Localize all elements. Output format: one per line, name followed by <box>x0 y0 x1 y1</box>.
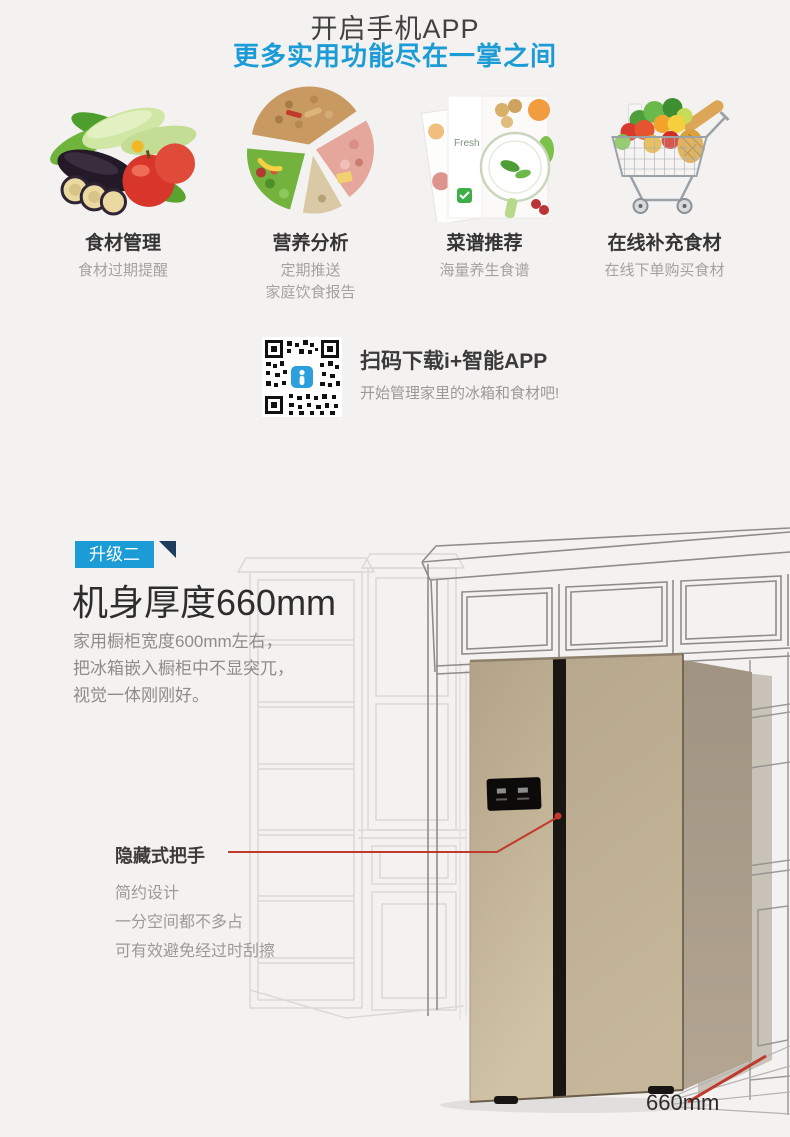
section-desc-line: 家用橱柜宽度600mm左右， <box>73 628 294 655</box>
section-title: 机身厚度660mm <box>72 574 336 626</box>
handle-callout-title: 隐藏式把手 <box>115 842 275 868</box>
qr-code-image <box>262 337 342 417</box>
fridge-right-door <box>566 654 683 1096</box>
shopping-cart-icon <box>582 82 747 222</box>
fridge-handle-strip <box>553 658 566 1099</box>
feature-desc-line: 食材过期提醒 <box>38 260 208 282</box>
nutrition-image <box>228 82 393 222</box>
fridge-foot <box>494 1096 518 1104</box>
handle-desc-line: 可有效避免经过时刮擦 <box>115 937 275 966</box>
cart-image <box>572 82 757 222</box>
pointer-dot <box>555 813 562 820</box>
badge-corner-icon <box>156 541 176 561</box>
fridge-left-door <box>470 658 553 1102</box>
feature-title: 菜谱推荐 <box>402 228 567 255</box>
feature-title: 营养分析 <box>228 228 393 255</box>
fridge-control-panel <box>486 777 541 811</box>
feature-desc-line: 定期推送 <box>228 260 393 282</box>
handle-desc-line: 简约设计 <box>115 879 275 908</box>
fridge-illustration <box>440 654 752 1113</box>
qr-code-icon <box>262 337 342 417</box>
ingredients-image <box>38 82 208 222</box>
qr-subtitle: 开始管理家里的冰箱和食材吧! <box>360 382 559 403</box>
section-desc-line: 把冰箱嵌入橱柜中不显突兀， <box>73 655 294 682</box>
handle-callout: 隐藏式把手 简约设计 一分空间都不多占 可有效避免经过时刮擦 <box>115 842 275 966</box>
feature-desc-line: 家庭饮食报告 <box>228 282 393 304</box>
feature-desc-line: 在线下单购买食材 <box>572 260 757 282</box>
product-detail-page: 开启手机APP 更多实用功能尽在一掌之间 <box>0 0 790 1137</box>
feature-title: 在线补充食材 <box>572 228 757 255</box>
qr-download-section: 扫码下载i+智能APP 开始管理家里的冰箱和食材吧! <box>262 337 559 417</box>
dimension-label: 660mm <box>646 1090 719 1116</box>
feature-card-ingredients: 食材管理 食材过期提醒 <box>38 82 208 282</box>
page-subtitle: 更多实用功能尽在一掌之间 <box>0 36 790 73</box>
food-pie-icon <box>236 84 386 220</box>
recipes-image: Fresh <box>402 82 567 222</box>
section-description: 家用橱柜宽度600mm左右， 把冰箱嵌入橱柜中不显突兀， 视觉一体刚刚好。 <box>73 628 294 709</box>
handle-desc-line: 一分空间都不多占 <box>115 908 275 937</box>
upgrade-badge-label: 升级二 <box>89 545 140 564</box>
recipe-card-text: Fresh <box>454 138 480 149</box>
feature-card-nutrition: 营养分析 定期推送 家庭饮食报告 <box>228 82 393 304</box>
recipe-card-icon: Fresh <box>410 82 560 222</box>
feature-desc-line: 海量养生食谱 <box>402 260 567 282</box>
qr-title: 扫码下载i+智能APP <box>360 345 559 375</box>
vegetables-icon <box>43 84 203 220</box>
upgrade-badge: 升级二 <box>75 541 154 568</box>
section-desc-line: 视觉一体刚刚好。 <box>73 682 294 709</box>
feature-card-shopping: 在线补充食材 在线下单购买食材 <box>572 82 757 282</box>
feature-card-recipes: Fresh 菜谱推荐 海量养生食谱 <box>402 82 567 282</box>
feature-title: 食材管理 <box>38 228 208 255</box>
fridge-side-panel <box>683 660 752 1090</box>
